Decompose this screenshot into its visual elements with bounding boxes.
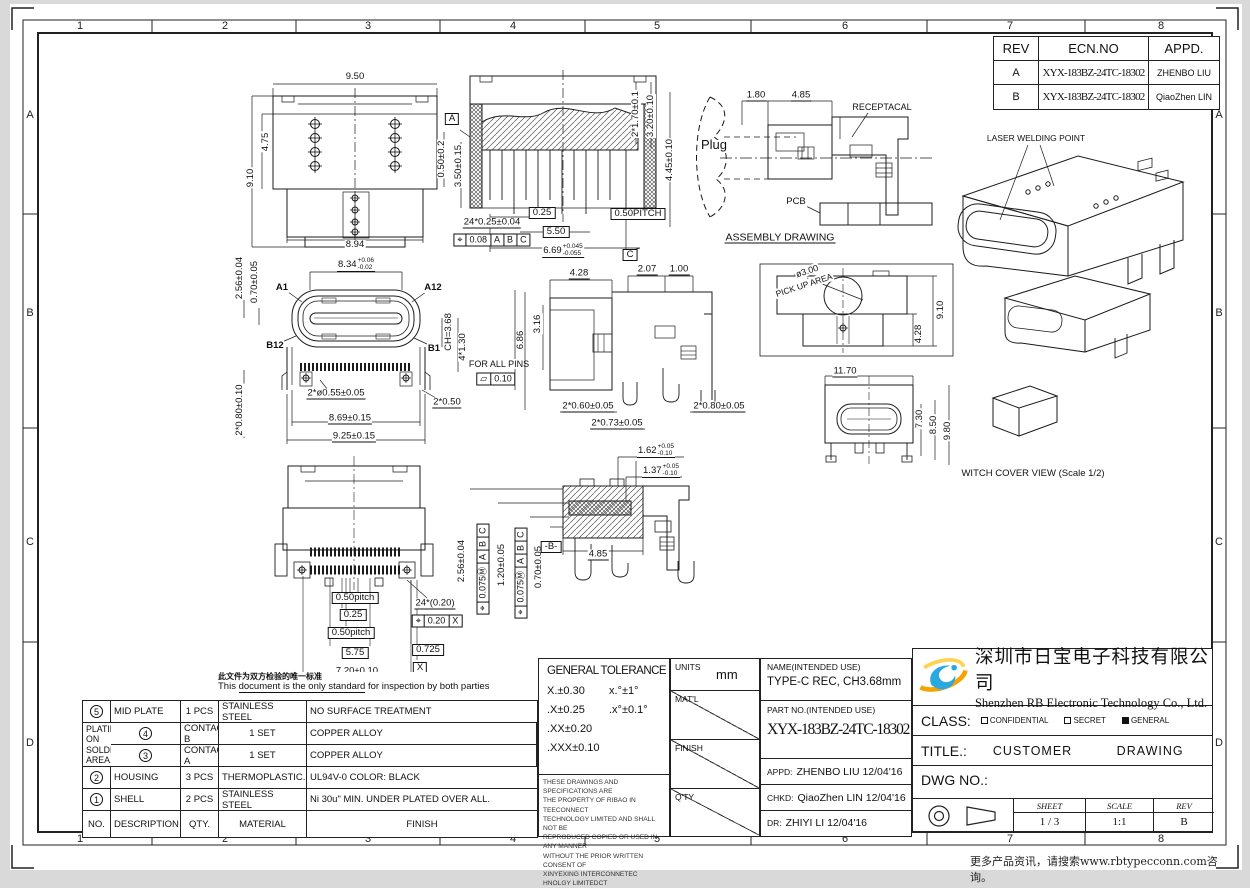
- dim-label: 4.75: [261, 132, 271, 153]
- dim-label: 4.85: [791, 91, 812, 102]
- dim-label: Plug: [700, 140, 728, 150]
- dim-label: 1.80: [746, 91, 767, 102]
- dim-label: 1.37+0.05-0.10: [642, 464, 680, 478]
- ecn-col-header: ECN.NO: [1039, 37, 1149, 61]
- part-material: COPPER ALLOY: [307, 745, 537, 767]
- name-value: TYPE-C REC, CH3.68mm: [767, 676, 911, 688]
- zone-letter: C: [26, 536, 34, 548]
- dim-label: 2*0.50: [432, 398, 461, 409]
- part-no: 3: [111, 745, 181, 767]
- dim-label: 0.25: [529, 207, 556, 219]
- part-description: HOUSING: [111, 767, 181, 789]
- scale-label: SCALE: [1086, 799, 1153, 813]
- dim-label: B12: [265, 341, 284, 351]
- dim-label: 2.56±0.04: [457, 539, 467, 583]
- rev-value: A: [994, 61, 1039, 85]
- checkbox-icon: [1064, 717, 1071, 724]
- part-finish: 50u" MIN. Ni UNDER PLATING. 80u" MIN. MA…: [83, 723, 111, 767]
- dim-label: 2.07: [637, 265, 658, 276]
- dim-label: 0.50pitch: [328, 627, 375, 639]
- dim-label: ⌖0.08ABC: [453, 234, 530, 247]
- dim-label: 0.50±0.2: [437, 140, 447, 179]
- scale-value: 1:1: [1086, 813, 1153, 832]
- dim-label: 24*0.25±0.04: [463, 218, 521, 229]
- units-block: UNITS mm MAT'L FINISH Q'TY: [670, 658, 760, 837]
- part-finish: UL94V-0 COLOR: BLACK: [307, 767, 537, 789]
- dim-label: ASSEMBLY DRAWING: [725, 233, 836, 244]
- rev-value: B: [1154, 813, 1214, 832]
- dim-label: 9.10: [246, 168, 256, 189]
- part-material: STAINLESS STEEL: [219, 701, 307, 723]
- part-finish: NO SURFACE TREATMENT: [307, 701, 537, 723]
- part-no: 4: [111, 723, 181, 745]
- partno-value: XYX-183BZ-24TC-18302: [767, 721, 911, 739]
- ecn-number: XYX-183BZ-24TC-18302: [1039, 85, 1149, 109]
- part-description: CONTACT A: [181, 745, 219, 767]
- dim-label: 2*0.60±0.05: [561, 402, 614, 413]
- dim-label: 1.00: [669, 265, 690, 276]
- name-label: NAME(INTENDED USE): [767, 662, 911, 672]
- zone-number: 1: [77, 20, 83, 32]
- dim-label: 4.45±0.10: [665, 138, 675, 182]
- zone-letter: D: [1215, 737, 1223, 749]
- dim-label: 0.25: [340, 609, 367, 621]
- dr-label: DR:: [767, 818, 782, 828]
- sheet-label: SHEET: [1014, 799, 1085, 813]
- qty-label: Q'TY: [675, 792, 694, 802]
- zone-number: 5: [654, 20, 660, 32]
- revision-table: REV ECN.NO APPD. A XYX-183BZ-24TC-18302 …: [993, 36, 1220, 110]
- rev-col-header: REV: [994, 37, 1039, 61]
- part-qty: 1 SET: [219, 745, 307, 767]
- class-option-general: GENERAL: [1122, 716, 1169, 725]
- dim-label: 0.70±0.05: [250, 260, 260, 304]
- company-name-cn: 深圳市日宝电子科技有限公司: [975, 643, 1212, 695]
- company-title-block: 深圳市日宝电子科技有限公司 Shenzhen RB Electronic Tec…: [912, 648, 1213, 832]
- part-description: SHELL: [111, 789, 181, 811]
- assembly-drawing-view: Plug1.804.85RECEPTACALPCBASSEMBLY DRAWIN…: [680, 85, 938, 253]
- dim-label: 8.94: [345, 240, 366, 250]
- dim-label: A: [445, 113, 459, 125]
- zone-number: 7: [1007, 20, 1013, 32]
- zone-letter: B: [26, 307, 33, 319]
- zone-number: 3: [365, 20, 371, 32]
- zone-number: 6: [842, 20, 848, 32]
- partno-label: PART NO.(INTENDED USE): [767, 705, 911, 715]
- col-header-qty: QTY.: [181, 811, 219, 837]
- checkbox-icon: [981, 717, 988, 724]
- chkd-label: CHKD:: [767, 793, 793, 803]
- company-logo: [913, 654, 971, 700]
- dim-label: PCB: [785, 197, 807, 207]
- part-material: COPPER ALLOY: [307, 723, 537, 745]
- matl-label: MAT'L: [675, 694, 699, 704]
- dim-label: B1: [427, 344, 441, 354]
- part-no: 2: [83, 767, 111, 789]
- dim-label: 9.50: [345, 72, 366, 82]
- dim-label: 9.10: [936, 300, 946, 321]
- dim-label: 2*0.73±0.05: [590, 419, 643, 430]
- footer-note: 更多产品资讯，请搜索www.rbtypecconn.com咨询。: [970, 853, 1220, 885]
- dim-label: 4.28: [914, 324, 924, 345]
- units-label: UNITS: [675, 662, 701, 672]
- part-material: STAINLESS STEEL: [219, 789, 307, 811]
- dim-label: 9.25±0.15: [332, 432, 376, 443]
- checkbox-icon: [1122, 717, 1129, 724]
- dim-label: 3.16: [533, 314, 543, 335]
- zone-letter: D: [26, 737, 34, 749]
- tolerance-linear: .X±0.25: [547, 701, 609, 720]
- title-value: CUSTOMER DRAWING: [993, 744, 1184, 758]
- dim-label: 2*1.70±0.1: [631, 90, 641, 138]
- appd-col-header: APPD.: [1149, 37, 1219, 61]
- units-value: mm: [716, 667, 738, 682]
- dim-label: WITCH COVER VIEW (Scale 1/2): [960, 469, 1105, 479]
- zone-number: 8: [1158, 833, 1164, 845]
- part-no: 5: [83, 701, 111, 723]
- zone-letter: C: [1215, 536, 1223, 548]
- inspection-note-cn: 此文件为双方检验的唯一标准: [218, 672, 548, 681]
- connector-side-view: 4.282.071.003.162*0.60±0.052*0.73±0.052*…: [505, 250, 765, 455]
- part-qty: 1 SET: [219, 723, 307, 745]
- zone-number: 7: [1007, 833, 1013, 845]
- zone-number: 4: [510, 20, 516, 32]
- chkd-value: QiaoZhen LIN 12/04'16: [797, 792, 905, 804]
- dim-label: 2*ø0.55±0.05: [307, 389, 366, 400]
- dim-label: 4.85: [588, 550, 609, 561]
- zone-number: 2: [222, 20, 228, 32]
- part-description: MID PLATE: [111, 701, 181, 723]
- connector-rear-section-view: 1.62+0.05-0.101.37+0.05-0.104.852.56±0.0…: [450, 433, 720, 633]
- col-header-finish: FINISH: [307, 811, 537, 837]
- dim-label: LASER WELDING POINT: [986, 133, 1086, 143]
- rev-value: B: [994, 85, 1039, 109]
- dim-label: 0.725: [412, 644, 444, 656]
- part-qty: 2 PCS: [181, 789, 219, 811]
- appd-label: APPD:: [767, 767, 793, 777]
- dr-value: ZHIYI LI 12/04'16: [786, 817, 867, 829]
- dim-label: 9.80: [943, 421, 953, 442]
- witch-cover-views: ø3.00PICK UP AREA9.104.2811.707.308.509.…: [755, 258, 1175, 486]
- tolerance-linear: .XX±0.20: [547, 720, 609, 739]
- dim-label: 2.56±0.04: [235, 256, 245, 300]
- rev-label: REV: [1154, 799, 1214, 813]
- general-tolerance-block: GENERAL TOLERANCE X.±0.30x.°±1° .X±0.25.…: [538, 658, 670, 775]
- dim-label: 8.34+0.06-0.02: [337, 258, 375, 272]
- dim-label: 5.75: [342, 647, 369, 659]
- class-option-secret: SECRET: [1064, 716, 1105, 725]
- dwg-no-label: DWG NO.:: [921, 772, 988, 788]
- tolerance-linear: .XXX±0.10: [547, 739, 609, 758]
- appd-value: ZHENBO LIU 12/04'16: [797, 766, 903, 778]
- dim-label: 0.50pitch: [332, 592, 379, 604]
- dim-label: A12: [423, 283, 442, 293]
- tolerance-title: GENERAL TOLERANCE: [547, 665, 669, 677]
- dim-label: A1: [275, 283, 289, 293]
- dim-label: RECEPTACAL: [851, 102, 912, 112]
- col-header-description: DESCRIPTION: [111, 811, 181, 837]
- appd-name: ZHENBO LIU: [1149, 61, 1219, 85]
- name-part-block: NAME(INTENDED USE) TYPE-C REC, CH3.68mm …: [760, 658, 912, 837]
- dim-label: 5.50: [543, 226, 570, 238]
- part-qty: 3 PCS: [181, 767, 219, 789]
- part-qty: 1 PCS: [181, 701, 219, 723]
- appd-name: QiaoZhen LIN: [1149, 85, 1219, 109]
- third-angle-projection-icon: [913, 799, 1013, 833]
- part-finish: Ni 30u" MIN. UNDER PLATED OVER ALL.: [307, 789, 537, 811]
- inspection-note-en: This document is the only standard for i…: [218, 681, 548, 693]
- tolerance-angular: x.°±1°: [609, 682, 639, 701]
- class-option-confidential: CONFIDENTIAL: [981, 716, 1049, 725]
- dim-label: ⌖0.075ⓂABC: [477, 523, 490, 614]
- col-header-material: MATERIAL: [219, 811, 307, 837]
- dim-label: 4.28: [569, 269, 590, 280]
- engineering-drawing-page: { "sheet": { "zones_top": ["1","2","3","…: [0, 0, 1250, 883]
- dim-label: 8.69±0.15: [328, 414, 372, 425]
- dim-label: 11.70: [832, 367, 857, 378]
- tolerance-linear: X.±0.30: [547, 682, 609, 701]
- dim-label: 1.20±0.05: [497, 543, 507, 587]
- dim-label: CH=3.68: [444, 312, 454, 352]
- dim-label: 8.50: [929, 415, 939, 436]
- tolerance-angular: .x°±0.1°: [609, 701, 648, 720]
- finish-label: FINISH: [675, 743, 703, 753]
- part-description: CONTACT B: [181, 723, 219, 745]
- dim-label: 3.20±0.10: [646, 94, 656, 138]
- title-label: TITLE.:: [921, 743, 967, 759]
- dim-label: 1.62+0.05-0.10: [637, 444, 675, 458]
- dim-label: ⌖0.075ⓂABC: [515, 527, 528, 618]
- dim-label: -B-: [541, 541, 562, 553]
- col-header-no: NO.: [83, 811, 111, 837]
- zone-number: 8: [1158, 20, 1164, 32]
- dim-label: 0.50PITCH: [611, 208, 666, 220]
- dim-label: 2*0.80±0.10: [235, 383, 245, 436]
- dim-label: 2*0.80±0.05: [692, 402, 745, 413]
- part-no: 1: [83, 789, 111, 811]
- connector-front-view: 8.34+0.06-0.02A1A12B12B12.56±0.040.70±0.…: [230, 250, 535, 458]
- zone-letter: A: [26, 109, 33, 121]
- parts-list-table: 5 MID PLATE 1 PCS STAINLESS STEEL NO SUR…: [82, 700, 538, 838]
- dim-label: 7.30: [915, 409, 925, 430]
- inspection-note: 此文件为双方检验的唯一标准 This document is the only …: [218, 672, 548, 693]
- part-material: THERMOPLASTIC.: [219, 767, 307, 789]
- legal-notice: THESE DRAWINGS AND SPECIFICATIONS ARETHE…: [538, 775, 670, 837]
- dim-label: 3.50±0.15: [454, 144, 464, 188]
- ecn-number: XYX-183BZ-24TC-18302: [1039, 61, 1149, 85]
- class-label: CLASS:: [921, 713, 971, 729]
- connector-section-view: A0.50±0.23.50±0.1524*0.25±0.04⌖0.08ABC0.…: [430, 62, 680, 270]
- sheet-value: 1 / 3: [1014, 813, 1085, 832]
- dim-label: 4*1.30: [458, 332, 468, 361]
